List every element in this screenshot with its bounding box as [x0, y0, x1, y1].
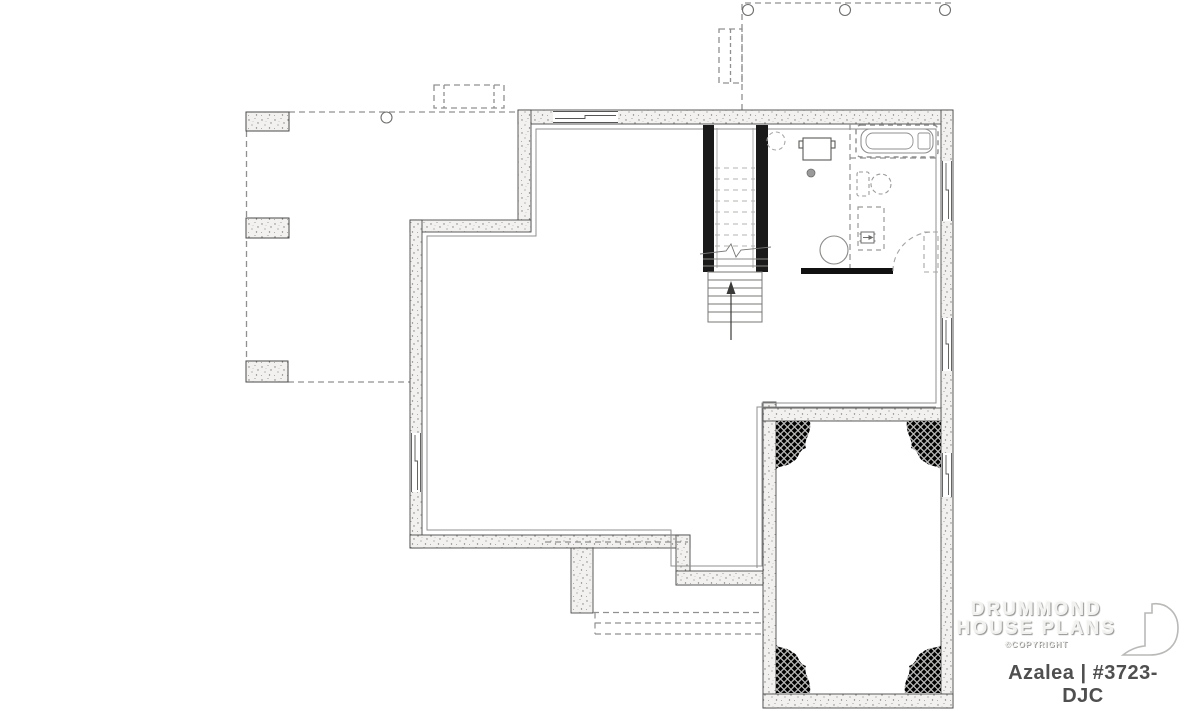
stair-wall-left: [703, 125, 714, 272]
window: [411, 433, 422, 492]
foundation-walls: [410, 110, 953, 708]
future-post-circle: [767, 132, 785, 150]
staircase: [700, 125, 771, 340]
bathtub: [856, 125, 938, 157]
plan-title: Azalea | #3723-DJC: [998, 662, 1168, 708]
brand-name-line2: HOUSE PLANS: [957, 619, 1116, 638]
rear-deck-outline: [719, 3, 953, 110]
garage-corner-hatch: [776, 421, 941, 693]
brand-copyright: ©COPYRIGHT: [957, 640, 1116, 649]
deck-piers: [246, 112, 289, 382]
door-swing: [893, 232, 938, 272]
window: [942, 453, 953, 497]
interior-offset-lines: [427, 129, 936, 568]
stair-treads-upper: [715, 168, 755, 246]
floor-drain: [807, 169, 815, 177]
framed-wall: [801, 268, 893, 274]
window: [553, 111, 618, 124]
window: [942, 161, 953, 221]
floor-plan-page: DRUMMOND HOUSE PLANS ©COPYRIGHT Azalea |…: [0, 0, 1200, 711]
water-heater: [858, 207, 884, 250]
brand-name-line1: DRUMMOND: [957, 600, 1116, 619]
pressure-tank: [820, 236, 848, 264]
laundry-sink: [799, 138, 835, 160]
stair-flight-lower: [708, 272, 762, 322]
window: [942, 318, 953, 371]
deck-posts: [743, 5, 951, 16]
windows: [411, 111, 953, 498]
stair-wall-right: [756, 125, 768, 272]
drummond-logo-icon: [1120, 600, 1182, 660]
brand-watermark: DRUMMOND HOUSE PLANS ©COPYRIGHT: [922, 600, 1182, 660]
toilet: [857, 172, 891, 196]
deck-post: [381, 112, 392, 123]
